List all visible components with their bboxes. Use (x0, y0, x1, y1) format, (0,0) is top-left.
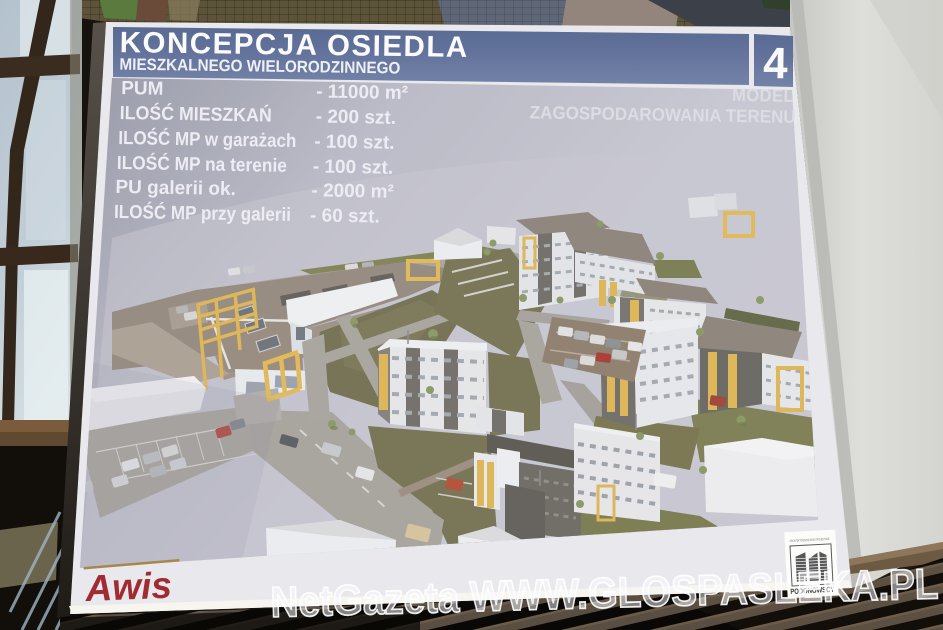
svg-text:- 100 szt.: - 100 szt. (314, 131, 395, 153)
svg-text:ILOŚĆ MP w garażach: ILOŚĆ MP w garażach (118, 127, 296, 152)
svg-text:- 200 szt.: - 200 szt. (316, 106, 397, 128)
svg-text:- 2000 m²: - 2000 m² (311, 180, 394, 202)
svg-text:ILOŚĆ MIESZKAŃ: ILOŚĆ MIESZKAŃ (120, 102, 272, 127)
svg-text:ILOŚĆ MP na terenie: ILOŚĆ MP na terenie (117, 152, 287, 177)
svg-text:PUM: PUM (121, 78, 164, 100)
svg-text:- 100 szt.: - 100 szt. (313, 156, 394, 178)
svg-text:MODEL: MODEL (732, 85, 794, 106)
svg-text:- 60 szt.: - 60 szt. (310, 205, 380, 227)
svg-text:Awis: Awis (84, 565, 173, 610)
svg-text:PU galerii ok.: PU galerii ok. (115, 177, 236, 200)
svg-text:4: 4 (763, 39, 789, 88)
svg-text:- 11000 m²: - 11000 m² (316, 81, 408, 104)
svg-text:ILOŚĆ MP przy galerii: ILOŚĆ MP przy galerii (114, 201, 291, 226)
